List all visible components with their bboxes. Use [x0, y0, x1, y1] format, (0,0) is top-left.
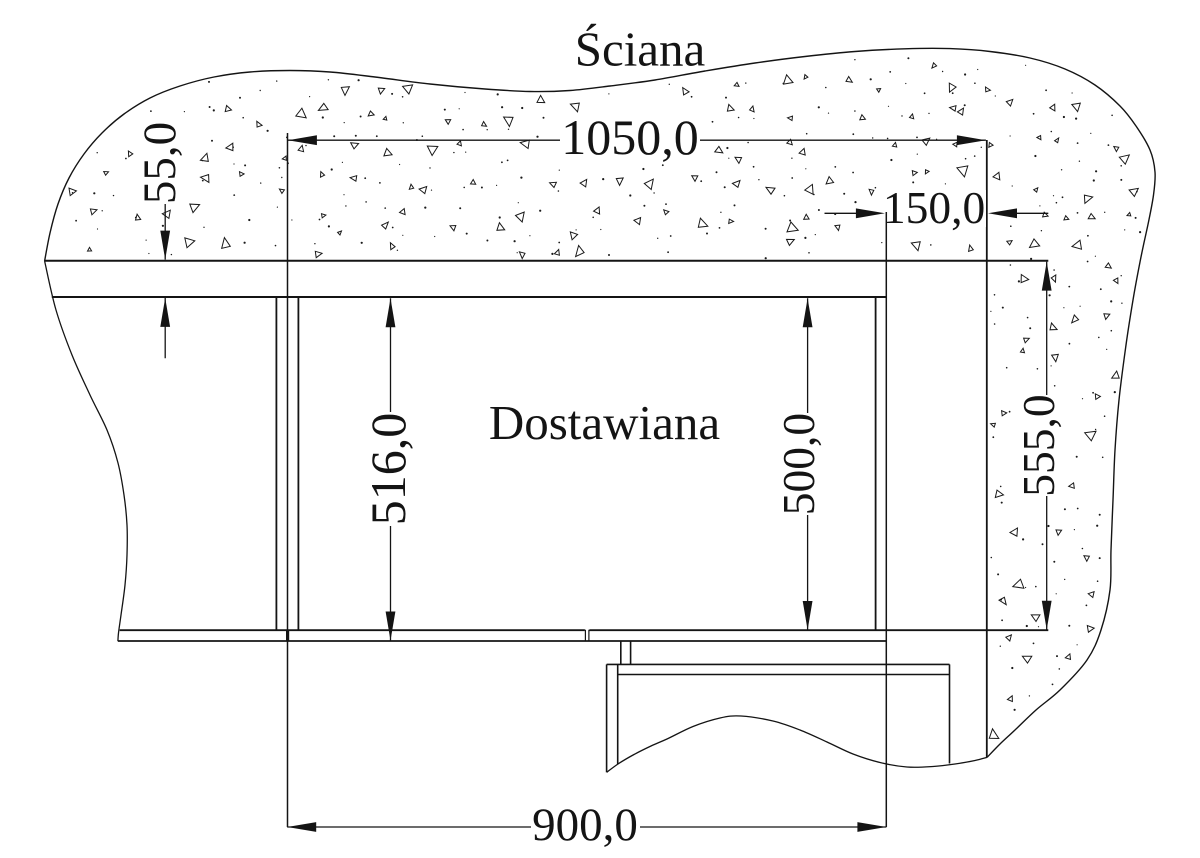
svg-text:1050,0: 1050,0	[561, 109, 699, 165]
svg-text:Dostawiana: Dostawiana	[489, 395, 721, 450]
svg-text:150,0: 150,0	[883, 182, 985, 233]
svg-text:555,0: 555,0	[1013, 394, 1064, 496]
svg-text:516,0: 516,0	[360, 413, 416, 526]
svg-text:Ściana: Ściana	[575, 22, 706, 77]
svg-text:55,0: 55,0	[134, 122, 186, 204]
svg-text:900,0: 900,0	[532, 799, 638, 851]
svg-text:500,0: 500,0	[773, 413, 824, 515]
